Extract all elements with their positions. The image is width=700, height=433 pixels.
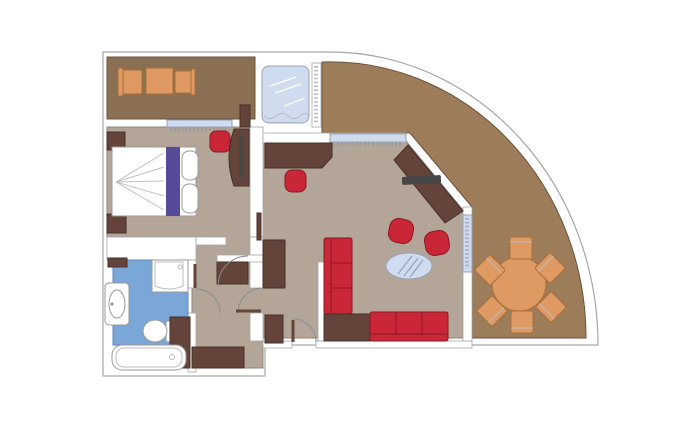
hall-bottom-cabinet — [192, 347, 244, 368]
balcony-chair-left — [118, 68, 142, 96]
bathtub — [112, 345, 186, 370]
balcony-chair-right — [175, 69, 195, 95]
hall-shelf — [217, 255, 263, 262]
balcony-table — [146, 68, 173, 94]
bath-shelf — [108, 258, 127, 267]
wardrobe-south — [265, 315, 283, 343]
bed-runner — [166, 147, 180, 216]
sofa-horizontal — [370, 312, 448, 341]
bedroom-tv — [239, 136, 243, 178]
whirlpool-deck — [262, 63, 321, 127]
oval-glass-table — [386, 253, 432, 279]
shower — [152, 260, 188, 292]
wardrobe-east — [263, 240, 285, 288]
corner-side-table — [324, 314, 370, 341]
bedroom-desk-chair — [210, 131, 230, 152]
bedroom-window — [167, 120, 232, 127]
washbasin — [105, 283, 129, 325]
sliding-terrace-door — [463, 215, 472, 272]
desk-chair — [285, 170, 306, 192]
pillow-2 — [182, 184, 198, 213]
balcony — [107, 57, 255, 119]
writing-desk — [265, 143, 332, 168]
sofa-vertical — [324, 238, 352, 314]
pillow-1 — [182, 151, 198, 180]
living-window — [330, 134, 406, 142]
floor-plan-canvas: Suite floor plan with curved private ter… — [0, 0, 700, 433]
bathroom — [105, 258, 190, 370]
wardrobe-center — [217, 262, 248, 284]
floor-plan: Suite floor plan with curved private ter… — [0, 0, 700, 433]
nightstand-bottom — [107, 214, 126, 233]
